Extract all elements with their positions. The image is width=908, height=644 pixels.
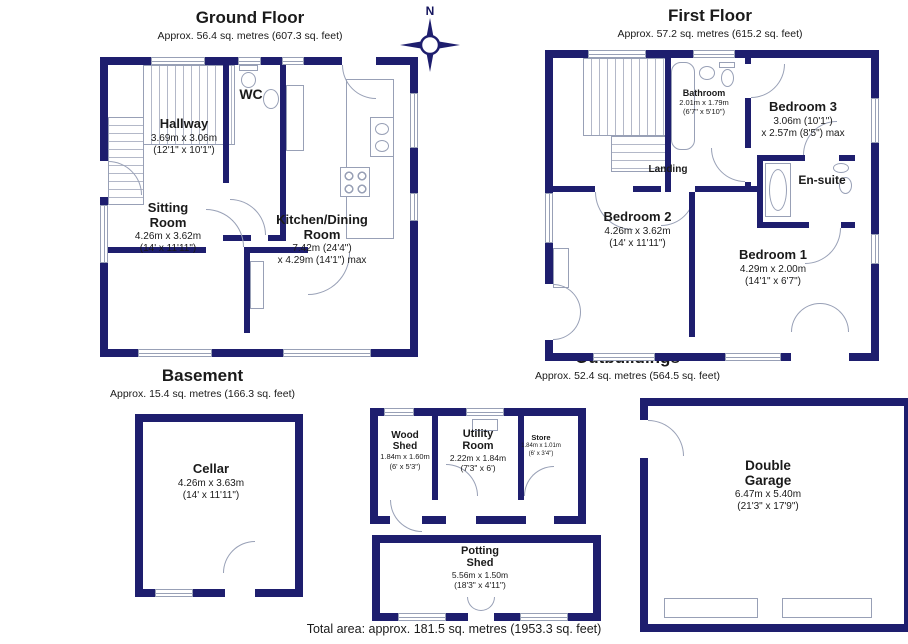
room-label-bedroom2: Bedroom 2 4.26m x 3.62m (14' x 11'11"): [575, 210, 700, 249]
wall: [757, 155, 805, 161]
room-label-bedroom3: Bedroom 3 3.06m (10'1") x 2.57m (8'5") m…: [751, 100, 855, 139]
door-gap: [545, 284, 553, 340]
first-floor-title: First Floor: [565, 6, 855, 26]
wall: [553, 186, 595, 192]
window: [588, 50, 646, 58]
ground-floor-title-block: Ground Floor Approx. 56.4 sq. metres (60…: [105, 8, 395, 42]
room-label-store: Store 1.84m x 1.01m (6' x 3'4"): [519, 434, 563, 458]
window: [384, 408, 414, 416]
door-gap: [791, 353, 849, 361]
door-arc: [524, 466, 554, 496]
room-label-bathroom: Bathroom 2.01m x 1.79m (6'7" x 5'10"): [662, 88, 746, 117]
window: [466, 408, 504, 416]
garage-door: [664, 598, 758, 618]
room-label-utility-room: Utility Room 2.22m x 1.84m (7'3" x 6'): [438, 428, 518, 474]
basement-subtitle: Approx. 15.4 sq. metres (166.3 sq. feet): [95, 388, 310, 400]
door-arc: [791, 303, 820, 332]
wall: [695, 186, 757, 192]
garage-door: [782, 598, 872, 618]
door-gap: [225, 589, 255, 597]
toilet: [719, 62, 735, 68]
window: [520, 613, 568, 621]
door-arc: [390, 500, 422, 532]
room-label-hallway: Hallway 3.69m x 3.06m (12'1" x 10'1"): [124, 117, 244, 156]
room-label-sitting-room: Sitting Room 4.26m x 3.62m (14' x 11'11"…: [113, 201, 223, 254]
stairs: [583, 58, 668, 136]
outbuildings-subtitle: Approx. 52.4 sq. metres (564.5 sq. feet): [520, 370, 735, 382]
door-gap: [342, 57, 376, 65]
sink: [699, 66, 715, 80]
shower: [769, 169, 787, 211]
fireplace: [250, 261, 264, 309]
door-arc: [553, 284, 581, 312]
room-label-double-garage: Double Garage 6.47m x 5.40m (21'3" x 17'…: [698, 458, 838, 513]
potting-shed-plan: Potting Shed 5.56m x 1.50m (18'3" x 4'11…: [372, 535, 601, 621]
door-gap: [640, 420, 648, 458]
ground-floor-plan: Hallway 3.69m x 3.06m (12'1" x 10'1") WC…: [100, 57, 418, 357]
sheds-plan: Wood Shed 1.84m x 1.60m (6' x 5'3") Util…: [370, 408, 586, 524]
wall: [757, 222, 809, 228]
toilet: [721, 69, 734, 87]
door-gap: [468, 613, 494, 621]
ground-floor-title: Ground Floor: [105, 8, 395, 28]
room-label-ensuite: En-suite: [789, 174, 855, 187]
room-label-wc: WC: [221, 87, 281, 103]
door-arc: [751, 64, 785, 98]
window: [410, 93, 418, 148]
door-arc: [467, 597, 481, 611]
basement-plan: Cellar 4.26m x 3.63m (14' x 11'11"): [135, 414, 303, 597]
door-arc: [711, 148, 745, 182]
room-label-potting-shed: Potting Shed 5.56m x 1.50m (18'3" x 4'11…: [410, 545, 550, 591]
floorplan-page: Ground Floor Approx. 56.4 sq. metres (60…: [0, 0, 908, 644]
first-floor-title-block: First Floor Approx. 57.2 sq. metres (615…: [565, 6, 855, 40]
room-label-landing: Landing: [623, 164, 713, 175]
total-area-label: Total area: approx. 181.5 sq. metres (19…: [0, 622, 908, 636]
door-arc: [223, 541, 255, 573]
toilet: [239, 65, 258, 71]
kitchen-counter: [286, 85, 304, 151]
window: [238, 57, 261, 65]
wall: [839, 155, 855, 161]
basement-title: Basement: [95, 366, 310, 386]
door-arc: [481, 597, 495, 611]
first-floor-plan: Bathroom 2.01m x 1.79m (6'7" x 5'10") Be…: [545, 50, 879, 361]
room-label-bedroom1: Bedroom 1 4.29m x 2.00m (14'1" x 6'7"): [703, 248, 843, 287]
kitchen-sink: [370, 117, 394, 157]
door-gap: [526, 516, 554, 524]
window: [871, 98, 879, 143]
door-gap: [446, 516, 476, 524]
room-label-cellar: Cellar 4.26m x 3.63m (14' x 11'11"): [151, 462, 271, 501]
window: [282, 57, 304, 65]
window: [410, 193, 418, 221]
wall: [518, 416, 524, 500]
door-arc: [820, 303, 849, 332]
double-garage-plan: Double Garage 6.47m x 5.40m (21'3" x 17'…: [640, 398, 908, 632]
window: [283, 349, 371, 357]
sink: [833, 163, 849, 173]
window: [871, 234, 879, 264]
stove: [340, 167, 370, 197]
window: [100, 205, 108, 263]
compass-north-label: N: [426, 4, 435, 18]
room-label-kitchen-dining: Kitchen/Dining Room 7.42m (24'4") x 4.29…: [254, 213, 390, 266]
window: [151, 57, 205, 65]
window: [398, 613, 446, 621]
wall: [633, 186, 661, 192]
window: [545, 193, 553, 243]
window: [138, 349, 212, 357]
sink-bowl: [375, 140, 389, 152]
wall: [841, 222, 855, 228]
door-arc: [553, 312, 581, 340]
sink-bowl: [375, 123, 389, 135]
room-label-wood-shed: Wood Shed 1.84m x 1.60m (6' x 5'3"): [378, 430, 432, 471]
window: [693, 50, 735, 58]
window: [155, 589, 193, 597]
furniture: [553, 248, 569, 288]
window: [593, 353, 655, 361]
basement-title-block: Basement Approx. 15.4 sq. metres (166.3 …: [95, 366, 310, 400]
window: [725, 353, 781, 361]
first-floor-subtitle: Approx. 57.2 sq. metres (615.2 sq. feet): [565, 28, 855, 40]
wall: [757, 155, 763, 222]
ground-floor-subtitle: Approx. 56.4 sq. metres (607.3 sq. feet): [105, 30, 395, 42]
door-gap: [100, 161, 108, 197]
door-arc: [648, 420, 684, 456]
